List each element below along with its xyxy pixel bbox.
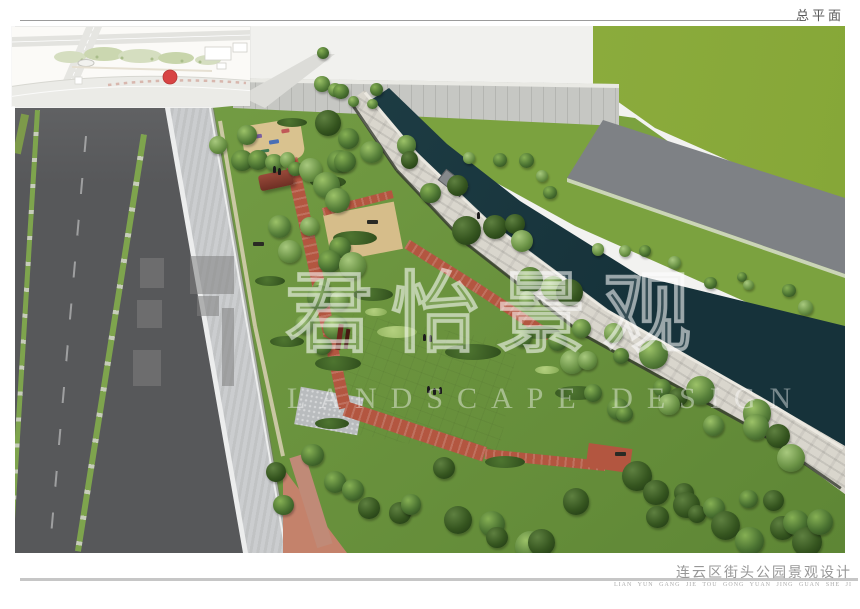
watermark-logo — [133, 350, 161, 386]
tree — [273, 495, 294, 516]
tree — [300, 217, 319, 236]
tree — [317, 47, 329, 59]
tree — [268, 215, 292, 239]
inset-map — [12, 27, 250, 106]
tree — [342, 479, 364, 501]
tree — [763, 490, 784, 511]
tree — [592, 243, 605, 256]
watermark-logo — [197, 296, 219, 316]
shrub-mass — [255, 276, 285, 286]
tree — [333, 84, 349, 100]
presentation-sheet: 总平面 — [0, 0, 860, 609]
watermark-logo — [190, 256, 234, 294]
tree — [237, 125, 257, 145]
watermark-logo — [140, 258, 164, 288]
shrub-mass — [277, 118, 307, 127]
tree — [447, 175, 468, 196]
tree — [528, 529, 555, 553]
bench — [253, 242, 264, 246]
bench — [367, 220, 378, 224]
shrub-mass — [535, 366, 559, 374]
tree — [619, 245, 631, 257]
tree — [639, 245, 651, 257]
tree — [452, 216, 481, 245]
tree — [301, 444, 324, 467]
tree — [401, 151, 418, 168]
tree — [543, 186, 557, 200]
watermark-chinese: 君怡景观 — [285, 268, 709, 365]
project-title-pinyin: LIAN YUN GANG JIE TOU GONG YUAN JING GUA… — [614, 582, 852, 588]
tree — [370, 83, 383, 96]
tree — [360, 141, 383, 164]
watermark-english: LANDSCAPE DESIGN — [287, 382, 805, 416]
person-figure — [477, 212, 480, 219]
shrub-mass — [485, 456, 525, 468]
project-title: 连云区街头公园景观设计 — [676, 562, 852, 582]
tree — [420, 183, 440, 203]
tree — [743, 280, 753, 290]
tree — [334, 151, 356, 173]
play-equipment — [281, 128, 290, 133]
play-equipment — [269, 139, 280, 145]
tree — [735, 527, 764, 554]
tree — [463, 152, 475, 164]
tree — [798, 300, 813, 315]
watermark-logo — [222, 308, 234, 386]
bench — [615, 452, 626, 456]
tree — [643, 480, 669, 506]
tree — [325, 188, 350, 213]
top-rule — [20, 20, 803, 21]
tree — [401, 494, 422, 515]
tree — [348, 96, 359, 107]
person-figure — [278, 168, 281, 175]
tree — [536, 170, 548, 182]
watermark-logo — [137, 300, 162, 328]
tree — [739, 490, 758, 509]
sheet-label: 总平面 — [796, 5, 844, 24]
tree — [315, 110, 341, 136]
tree — [511, 230, 533, 252]
shrub-mass — [315, 418, 349, 429]
person-figure — [273, 166, 276, 173]
tree — [433, 457, 455, 479]
site-location-marker — [163, 70, 177, 84]
tree — [646, 506, 669, 529]
inset-map-drawing — [12, 27, 250, 106]
tree — [358, 497, 380, 519]
tree — [266, 462, 286, 482]
tree — [493, 153, 507, 167]
